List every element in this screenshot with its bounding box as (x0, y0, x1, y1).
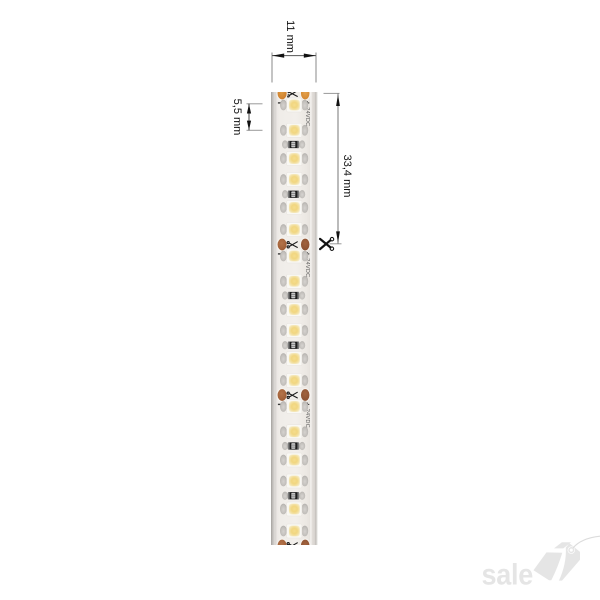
svg-text:11 mm: 11 mm (284, 20, 296, 53)
svg-text:33,4 mm: 33,4 mm (341, 155, 353, 198)
svg-text:5,5 mm: 5,5 mm (231, 99, 243, 136)
svg-text:sale: sale (482, 558, 533, 592)
